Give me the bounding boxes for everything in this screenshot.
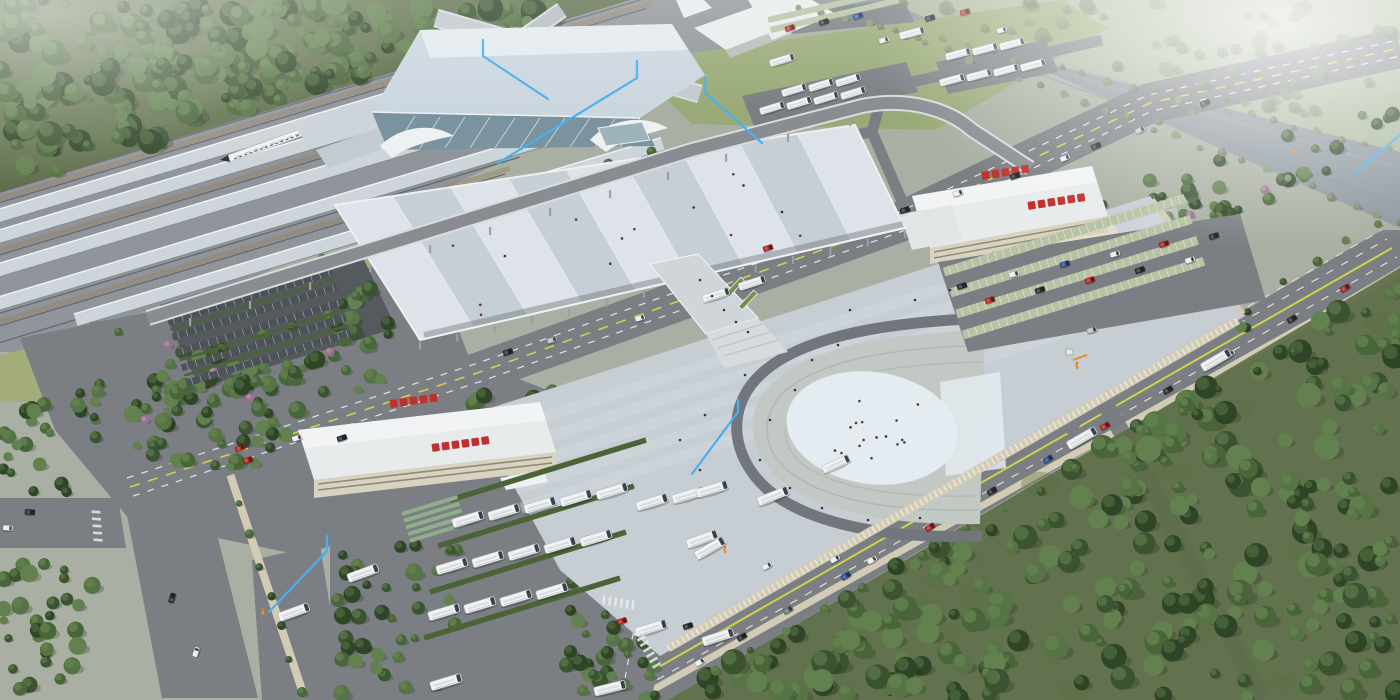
tree-crown — [573, 656, 582, 665]
car-windshield — [31, 510, 34, 514]
tree-crown — [883, 628, 895, 640]
tree-crown — [1323, 420, 1332, 429]
tree-crown — [41, 423, 47, 429]
tree-crown — [91, 413, 96, 418]
tree-crown — [62, 487, 68, 493]
tree-crown — [34, 458, 42, 466]
tree-crown — [1298, 385, 1312, 399]
tree-crown — [999, 507, 1003, 511]
tree-crown — [413, 602, 420, 609]
tree-crown — [46, 429, 51, 434]
person-dot — [855, 422, 858, 425]
tree-crown — [471, 393, 477, 399]
tree-crown — [1362, 376, 1371, 385]
deck-column — [606, 299, 608, 307]
person-dot — [917, 403, 920, 406]
tree-crown — [601, 611, 606, 616]
tree-crown — [17, 559, 25, 567]
tree-crown — [1146, 632, 1159, 645]
tree-crown — [1316, 436, 1330, 450]
tree-crown — [952, 562, 960, 570]
tree-crown — [411, 635, 416, 640]
tree-crown — [985, 653, 997, 665]
sign-character-block — [389, 399, 398, 408]
tree-crown — [1360, 548, 1374, 562]
tree-crown — [1072, 464, 1077, 469]
viaduct-column — [369, 264, 371, 272]
tree-crown — [1093, 437, 1106, 450]
tree-crown — [1145, 429, 1149, 433]
tree-crown — [1391, 329, 1398, 336]
tree-crown — [1163, 641, 1175, 653]
tree-crown — [0, 617, 5, 622]
tree-crown — [1307, 619, 1314, 626]
tree-crown — [209, 429, 217, 437]
tree-crown — [363, 282, 372, 291]
tree-crown — [413, 584, 418, 589]
tree-crown — [1288, 496, 1296, 504]
tree-crown — [335, 608, 345, 618]
tree-crown — [1038, 520, 1045, 527]
tree-crown — [1105, 615, 1113, 623]
deck-column — [568, 308, 570, 316]
tree-crown — [566, 606, 572, 612]
tree-crown — [376, 606, 384, 614]
tree-crown — [68, 623, 77, 632]
tree-crown — [1026, 564, 1037, 575]
person-dot — [704, 414, 707, 417]
person-dot — [480, 314, 483, 317]
tree-crown — [1320, 653, 1334, 667]
viaduct-column — [725, 154, 727, 162]
tree-crown — [711, 666, 717, 672]
tree-crown — [1314, 601, 1322, 609]
person-dot — [759, 459, 762, 462]
person-dot — [867, 519, 870, 522]
tree-crown — [1215, 402, 1228, 415]
person-dot — [789, 487, 792, 490]
tree-crown — [1343, 567, 1351, 575]
person-dot — [769, 419, 772, 422]
tree-crown — [1015, 526, 1028, 539]
tree-crown — [1336, 396, 1345, 405]
tree-crown — [141, 404, 147, 410]
tree-crown — [1274, 346, 1282, 354]
tree-crown — [319, 387, 325, 393]
person-dot — [711, 295, 714, 298]
tree-crown — [1342, 679, 1355, 692]
tree-crown — [1325, 328, 1330, 333]
deck-column — [829, 247, 831, 255]
tree-crown — [7, 469, 12, 474]
tree-crown — [771, 639, 780, 648]
person-dot — [699, 469, 702, 472]
tree-crown — [883, 615, 892, 624]
tree-crown — [182, 454, 190, 462]
tree-crown — [246, 394, 251, 399]
tree-crown — [1331, 377, 1343, 389]
tree-crown — [560, 658, 568, 666]
tree-crown — [895, 597, 909, 611]
tree-crown — [755, 656, 765, 666]
tree-crown — [208, 396, 215, 403]
tree-crown — [85, 578, 94, 587]
tree-crown — [1304, 659, 1312, 667]
tree-crown — [1303, 532, 1309, 538]
tree-crown — [812, 670, 825, 683]
tree-crown — [944, 573, 951, 580]
tree-crown — [1295, 511, 1304, 520]
tree-crown — [1173, 482, 1179, 488]
tree-crown — [1254, 641, 1266, 653]
sign-character-block — [461, 439, 470, 448]
tree-crown — [41, 657, 47, 663]
deck-column — [419, 342, 421, 350]
person-dot — [811, 359, 814, 362]
tree-crown — [240, 422, 248, 430]
tree-crown — [252, 436, 259, 443]
tree-crown — [1131, 562, 1139, 570]
tree-crown — [1006, 542, 1013, 549]
tree-crown — [1045, 636, 1059, 650]
tree-crown — [1211, 669, 1217, 675]
tree-crown — [1349, 488, 1355, 494]
tree-crown — [73, 600, 80, 607]
tree-crown — [266, 443, 272, 449]
tree-crown — [28, 405, 36, 413]
person-dot — [479, 303, 482, 306]
tree-crown — [974, 579, 983, 588]
person-dot — [794, 389, 797, 392]
tree-crown — [1121, 478, 1132, 489]
sign-character-block — [451, 440, 460, 449]
tree-crown — [71, 398, 79, 406]
tree-crown — [21, 565, 31, 575]
tree-crown — [252, 403, 261, 412]
tree-crown — [230, 455, 239, 464]
tree-crown — [141, 416, 146, 421]
tree-crown — [269, 418, 275, 424]
tree-crown — [1059, 552, 1071, 564]
tree-crown — [1374, 542, 1382, 550]
tree-crown — [723, 651, 737, 665]
tree-crown — [862, 611, 874, 623]
car-roof-sheen — [4, 526, 8, 530]
tree-crown — [282, 360, 289, 367]
tree-crown — [55, 674, 61, 680]
tree-crown — [70, 638, 80, 648]
person-dot — [896, 443, 899, 446]
tree-crown — [335, 653, 343, 661]
tree-crown — [1373, 426, 1379, 432]
tree-crown — [340, 566, 348, 574]
tree-crown — [1216, 386, 1220, 390]
person-dot — [692, 206, 695, 209]
person-dot — [730, 234, 733, 237]
sign-character-block — [419, 395, 428, 404]
tree-crown — [1252, 479, 1263, 490]
tree-crown — [770, 680, 783, 693]
person-dot — [723, 309, 726, 312]
tree-crown — [310, 352, 319, 361]
tree-crown — [115, 328, 120, 333]
tree-crown — [1289, 627, 1298, 636]
person-dot — [849, 426, 852, 429]
tree-crown — [5, 635, 10, 640]
viaduct-column — [489, 227, 491, 235]
tree-crown — [1097, 578, 1108, 589]
tree-crown — [1242, 691, 1248, 697]
tree-crown — [339, 631, 347, 639]
tree-crown — [1184, 618, 1191, 625]
person-dot — [679, 439, 682, 442]
tree-crown — [1388, 314, 1399, 325]
aerial-rendering-railway-station-complex — [0, 0, 1400, 700]
tree-crown — [9, 665, 14, 670]
tree-crown — [55, 478, 63, 486]
tree-crown — [4, 453, 9, 458]
tree-crown — [896, 658, 908, 670]
tree-crown — [156, 414, 165, 423]
tree-crown — [47, 597, 54, 604]
tree-crown — [1344, 584, 1358, 598]
tree-crown — [589, 670, 595, 676]
tree-crown — [61, 594, 68, 601]
tree-crown — [289, 366, 296, 373]
person-dot — [834, 449, 837, 452]
tree-crown — [147, 449, 155, 457]
tree-crown — [349, 655, 357, 663]
tree-crown — [1279, 434, 1287, 442]
tree-crown — [698, 668, 710, 680]
tree-crown — [1377, 339, 1386, 348]
tree-crown — [1071, 487, 1084, 500]
tree-crown — [449, 618, 457, 626]
tree-crown — [1116, 438, 1126, 448]
tree-crown — [363, 581, 368, 586]
tree-crown — [1179, 594, 1190, 605]
tree-crown — [1305, 481, 1312, 488]
tree-crown — [1234, 594, 1241, 601]
tree-crown — [1166, 423, 1178, 435]
tree-crown — [13, 598, 23, 608]
tree-crown — [884, 581, 895, 592]
tree-crown — [399, 681, 407, 689]
person-dot — [862, 439, 865, 442]
tree-crown — [1312, 312, 1323, 323]
tree-crown — [1165, 536, 1174, 545]
tree-crown — [1080, 625, 1090, 635]
tree-crown — [1205, 451, 1213, 459]
tree-crown — [1319, 589, 1327, 597]
tree-crown — [1124, 452, 1132, 460]
tree-crown — [949, 609, 955, 615]
tree-crown — [1240, 460, 1251, 471]
tree-crown — [1347, 632, 1359, 644]
tree-crown — [1049, 513, 1058, 522]
tree-crown — [839, 591, 849, 601]
tree-crown — [1216, 432, 1228, 444]
tree-crown — [152, 386, 157, 391]
tree-crown — [46, 611, 51, 616]
tree-crown — [1064, 597, 1073, 606]
viaduct-column — [667, 172, 669, 180]
sign-character-block — [481, 436, 490, 445]
tree-crown — [1375, 556, 1381, 562]
tree-crown — [638, 658, 644, 664]
person-dot — [781, 211, 784, 214]
tree-crown — [841, 631, 852, 642]
tree-crown — [1136, 512, 1148, 524]
tree-crown — [1238, 675, 1245, 682]
sign-character-block — [441, 442, 450, 451]
west-road-branch — [0, 498, 126, 548]
tree-crown — [747, 647, 751, 651]
deck-column — [494, 325, 496, 333]
deck-column — [531, 316, 533, 324]
tree-crown — [245, 530, 250, 535]
tree-crown — [987, 525, 994, 532]
tree-crown — [257, 421, 266, 430]
tree-crown — [342, 641, 350, 649]
tree-crown — [572, 615, 580, 623]
tree-crown — [565, 646, 572, 653]
tree-crown — [651, 691, 656, 696]
tree-crown — [1205, 549, 1211, 555]
tree-crown — [354, 386, 359, 391]
tree-crown — [38, 398, 46, 406]
tree-crown — [444, 595, 450, 601]
person-dot — [609, 262, 612, 265]
tree-crown — [1307, 554, 1320, 567]
person-dot — [742, 184, 745, 187]
tree-crown — [164, 341, 169, 346]
tree-crown — [1165, 437, 1174, 446]
tree-crown — [1187, 495, 1193, 501]
tree-crown — [395, 541, 402, 548]
tree-crown — [1337, 614, 1346, 623]
tree-crown — [1135, 533, 1147, 545]
tree-crown — [1369, 633, 1375, 639]
tree-crown — [148, 374, 157, 383]
tree-crown — [226, 378, 233, 385]
tree-crown — [1201, 542, 1208, 549]
tree-crown — [382, 317, 390, 325]
car-roof-sheen — [26, 510, 30, 514]
tree-crown — [608, 621, 616, 629]
tree-crown — [290, 402, 300, 412]
tree-crown — [602, 647, 609, 654]
person-dot — [744, 374, 747, 377]
tree-crown — [1119, 584, 1126, 591]
tree-crown — [152, 393, 157, 398]
tree-crown — [1137, 425, 1143, 431]
tree-crown — [352, 559, 359, 566]
tree-crown — [365, 370, 373, 378]
tree-crown — [14, 683, 22, 691]
tree-crown — [858, 584, 863, 589]
tree-crown — [268, 593, 273, 598]
tree-crown — [65, 658, 74, 667]
tree-crown — [133, 442, 138, 447]
tree-crown — [1180, 398, 1188, 406]
person-dot — [858, 400, 861, 403]
tree-crown — [342, 366, 348, 372]
deck-column — [792, 256, 794, 264]
tree-crown — [1179, 408, 1184, 413]
tree-crown — [1259, 582, 1267, 590]
haze-top — [0, 0, 1400, 110]
tree-crown — [1075, 676, 1084, 685]
tree-crown — [907, 678, 917, 688]
tree-crown — [624, 651, 628, 655]
tree-crown — [1379, 383, 1388, 392]
tree-crown — [1216, 616, 1229, 629]
tree-crown — [376, 375, 382, 381]
tree-crown — [1384, 345, 1398, 359]
tree-crown — [1362, 308, 1367, 313]
tree-crown — [12, 441, 18, 447]
tree-crown — [578, 686, 584, 692]
tree-crown — [447, 546, 452, 551]
tree-crown — [1334, 589, 1342, 597]
tree-crown — [1381, 478, 1391, 488]
tree-crown — [911, 560, 917, 566]
tree-crown — [371, 663, 378, 670]
person-dot — [747, 331, 750, 334]
tree-crown — [95, 380, 101, 386]
tree-crown — [1288, 603, 1295, 610]
person-dot — [919, 517, 922, 520]
tree-crown — [813, 652, 827, 666]
tree-crown — [202, 407, 208, 413]
tree-crown — [1248, 501, 1258, 511]
tree-crown — [1163, 594, 1175, 606]
tree-crown — [29, 487, 35, 493]
tree-crown — [251, 376, 257, 382]
tree-crown — [76, 389, 81, 394]
tree-crown — [132, 400, 138, 406]
tree-crown — [1385, 536, 1392, 543]
tree-crown — [1156, 688, 1166, 698]
tree-crown — [298, 688, 304, 694]
tree-crown — [963, 610, 976, 623]
deck-column — [456, 333, 458, 341]
tree-crown — [647, 147, 652, 152]
tree-crown — [1226, 474, 1235, 483]
tree-crown — [1357, 336, 1369, 348]
tree-crown — [355, 639, 364, 648]
tree-crown — [953, 543, 964, 554]
tree-crown — [227, 464, 231, 468]
person-dot — [575, 218, 578, 221]
tree-crown — [335, 686, 344, 695]
sign-character-block — [409, 396, 418, 405]
tree-crown — [326, 348, 331, 353]
person-dot — [895, 419, 898, 422]
tree-crown — [1339, 500, 1348, 509]
person-dot — [875, 436, 878, 439]
viaduct-column — [609, 190, 611, 198]
tree-crown — [919, 552, 925, 558]
tree-crown — [1387, 615, 1393, 621]
tree-crown — [1334, 574, 1341, 581]
tree-crown — [987, 605, 1000, 618]
tree-crown — [256, 564, 260, 568]
tree-crown — [1235, 563, 1248, 576]
tree-crown — [1137, 438, 1151, 452]
viaduct-column — [249, 301, 251, 309]
